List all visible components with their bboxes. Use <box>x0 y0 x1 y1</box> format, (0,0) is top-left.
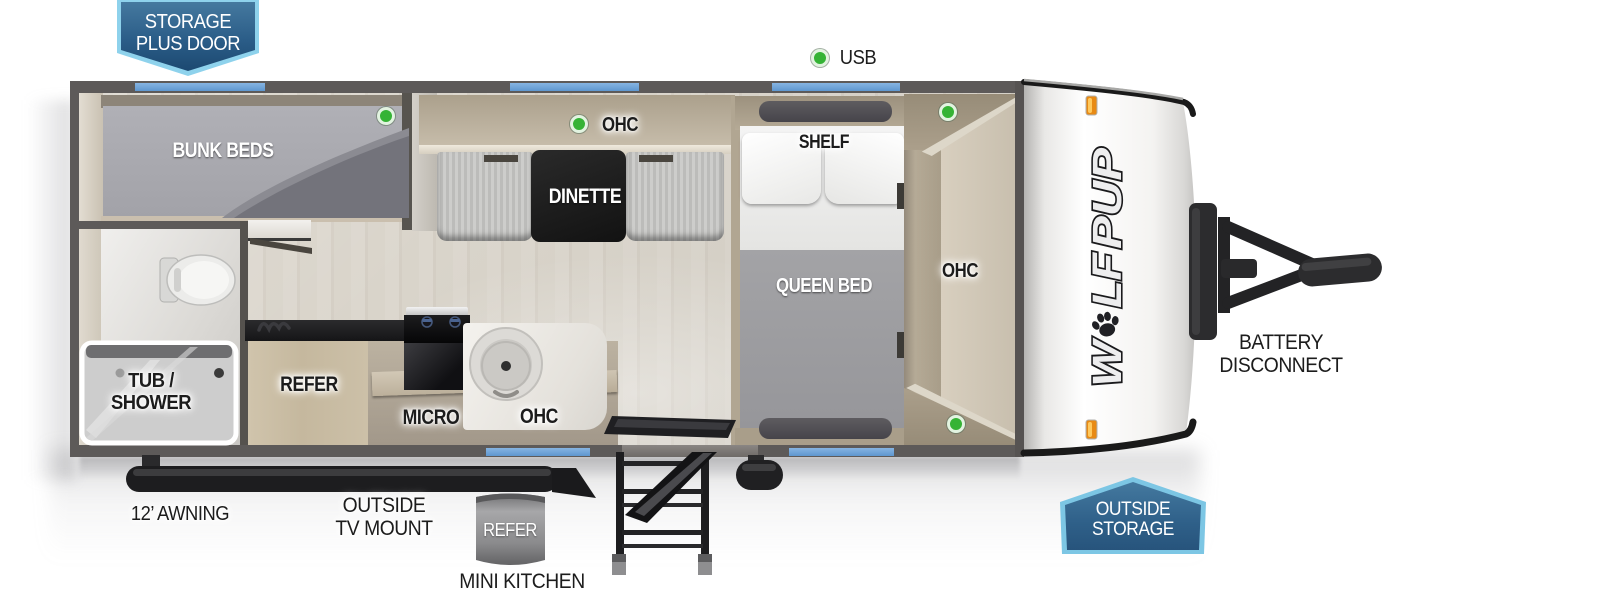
svg-text:PUP: PUP <box>1084 147 1130 249</box>
svg-text:W: W <box>1084 337 1130 387</box>
svg-text:LF: LF <box>1084 252 1130 308</box>
